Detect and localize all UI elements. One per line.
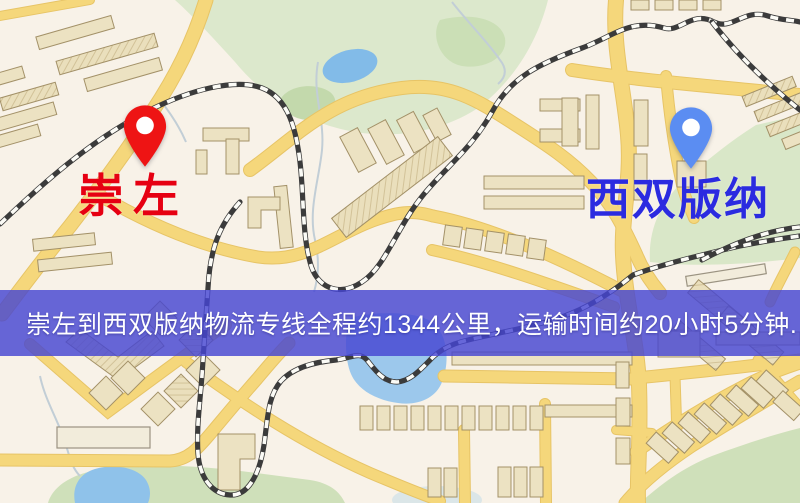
- route-info-text: 崇左到西双版纳物流专线全程约1344公里，运输时间约20小时5分钟.: [26, 305, 797, 341]
- map-canvas: [0, 0, 800, 503]
- destination-pin-shape: [670, 107, 712, 168]
- destination-pin-icon: [668, 105, 714, 171]
- route-info-banner: 崇左到西双版纳物流专线全程约1344公里，运输时间约20小时5分钟.: [0, 290, 800, 356]
- origin-pin-icon: [122, 103, 168, 169]
- route-map-image: 崇左 西双版纳 崇左到西双版纳物流专线全程约1344公里，运输时间约20小时5分…: [0, 0, 800, 503]
- destination-label: 西双版纳: [586, 178, 770, 222]
- origin-label: 崇左: [78, 174, 188, 220]
- origin-pin-shape: [124, 105, 166, 166]
